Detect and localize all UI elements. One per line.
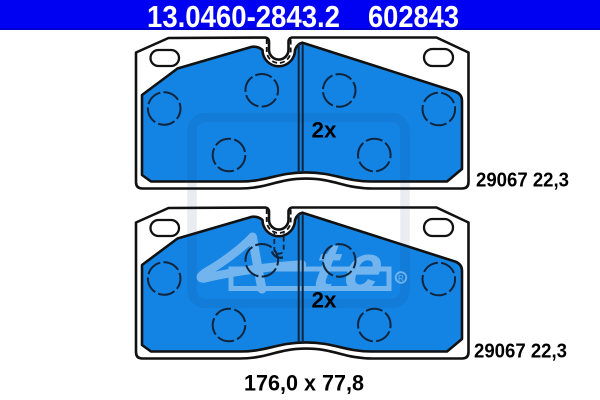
svg-text:13.0460-2843.2: 13.0460-2843.2 [147,0,340,34]
svg-text:29067 22,3: 29067 22,3 [476,170,569,192]
svg-text:2x: 2x [312,288,337,313]
svg-text:176,0 x 77,8: 176,0 x 77,8 [244,371,364,396]
svg-text:602843: 602843 [368,0,459,34]
svg-text:R: R [398,274,404,283]
svg-text:29067 22,3: 29067 22,3 [474,341,567,363]
svg-text:2x: 2x [312,118,337,143]
